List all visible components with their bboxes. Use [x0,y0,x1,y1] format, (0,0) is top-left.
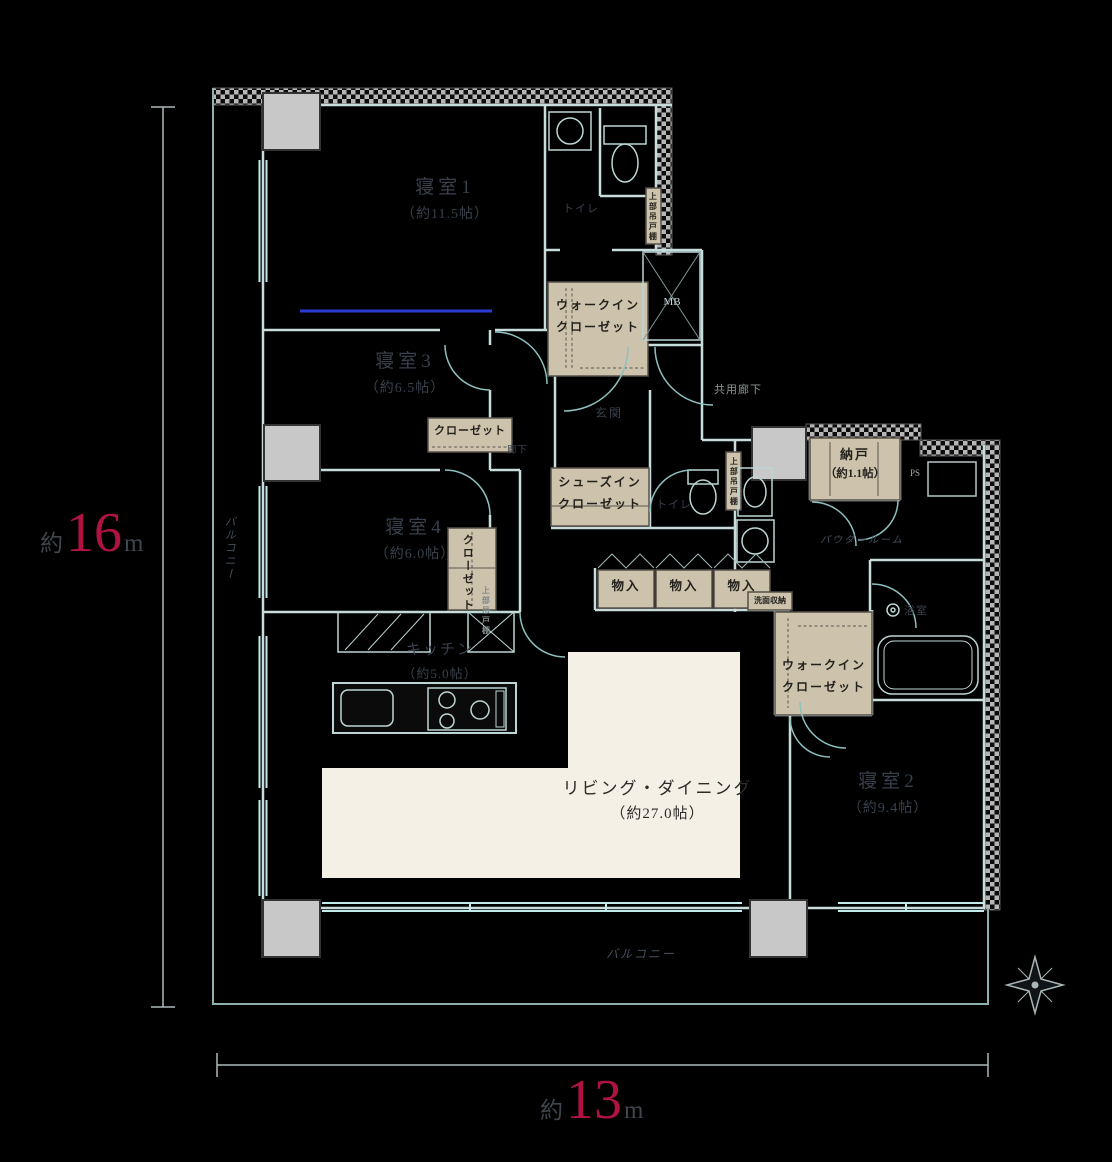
bedroom1-name: 寝室1 [355,176,535,201]
walk-in-closet1-line2: クローゼット [548,317,648,339]
closet1-label: クローゼット [430,424,510,438]
floorplan-drawing [0,0,1112,1162]
dimension-left-prefix: 約 [40,524,64,558]
living-dining-name: リビング・ダイニング [535,778,780,800]
dimension-bottom-prefix: 約 [540,1091,564,1125]
bedroom3-label: 寝室3 （約6.5帖） [315,350,495,398]
balcony-left-label: バルコニー [222,500,236,596]
entrance-label: 玄関 [586,406,632,422]
bathroom-label: 浴室 [896,604,936,618]
shoes-in-closet-label: シューズイン クローゼット [551,472,649,515]
shared-corridor-label: 共用廊下 [702,383,774,397]
bedroom3-name: 寝室3 [315,350,495,375]
dimension-bottom-value: 13 [566,1072,622,1128]
hallway-label: 廊下 [497,444,537,457]
bedroom2-size: （約9.4帖） [798,800,978,818]
upper-cabinet3-label: 上部吊戸棚 [728,455,738,509]
storage-room-label: 納戸 （約1.1帖） [808,447,902,482]
dimension-bottom: 約 13 m [540,1072,643,1128]
bedroom4-size: （約6.0帖） [325,546,505,564]
folding-door-marks [598,554,770,568]
walk-in-closet1-line1: ウォークイン [548,295,648,317]
meter-box-label: MB [655,295,689,309]
bedroom2-label: 寝室2 （約9.4帖） [798,770,978,818]
kitchen-name: キッチン [355,641,525,661]
washstand-storage-label: 洗面収納 [749,596,791,606]
bedroom2-name: 寝室2 [798,770,978,795]
living-dining-label: リビング・ダイニング （約27.0帖） [535,778,780,825]
storage-room-size: （約1.1帖） [808,467,902,482]
dimension-bottom-unit: m [624,1097,643,1125]
storage2-label: 物入 [656,578,712,594]
toilet2-label: トイレ [652,498,696,512]
dimension-left: 約 16 m [40,505,143,561]
bedroom4-name: 寝室4 [325,516,505,541]
bedroom1-size: （約11.5帖） [355,206,535,224]
bedroom1-label: 寝室1 （約11.5帖） [355,176,535,224]
dimension-left-value: 16 [66,505,122,561]
walk-in-closet2-line2: クローゼット [774,677,874,699]
upper-cabinet2-label: 上部吊戸棚 [480,583,490,638]
pipe-space-label: PS [903,468,927,480]
balcony-bottom-label: バルコニー [586,947,696,963]
storage3-label: 物入 [714,578,770,594]
powder-room-label: パウダールーム [810,534,914,547]
bedroom3-size: （約6.5帖） [315,380,495,398]
shoes-in-closet-line2: クローゼット [551,494,649,516]
walk-in-closet2-label: ウォークイン クローゼット [774,655,874,698]
compass-icon [1007,957,1063,1013]
upper-cabinet1-label: 上部吊戸棚 [647,191,657,243]
floorplan-page: 寝室1 （約11.5帖） 寝室3 （約6.5帖） 寝室4 （約6.0帖） キッチ… [0,0,1112,1162]
storage1-label: 物入 [598,578,654,594]
bedroom4-label: 寝室4 （約6.0帖） [325,516,505,564]
kitchen-size: （約5.0帖） [355,666,525,683]
dimension-left-unit: m [124,530,143,558]
closet2-label: クローゼット [460,534,474,606]
walk-in-closet2-line1: ウォークイン [774,655,874,677]
kitchen-label: キッチン （約5.0帖） [355,641,525,682]
storage-room-name: 納戸 [808,447,902,464]
living-dining-size: （約27.0帖） [535,805,780,825]
walk-in-closet1-label: ウォークイン クローゼット [548,295,648,338]
shoes-in-closet-line1: シューズイン [551,472,649,494]
toilet1-label: トイレ [558,202,604,216]
